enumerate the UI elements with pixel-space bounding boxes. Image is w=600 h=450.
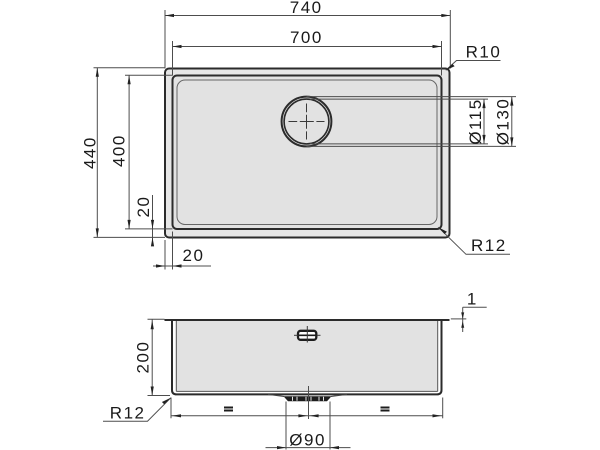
svg-text:Ø115: Ø115 [466,98,485,144]
svg-text:700: 700 [290,28,323,47]
svg-text:R12: R12 [471,236,507,255]
svg-text:400: 400 [109,134,128,167]
svg-text:Ø130: Ø130 [494,98,513,146]
svg-text:20: 20 [134,196,153,218]
svg-text:R10: R10 [466,42,502,61]
svg-text:Ø90: Ø90 [289,431,326,450]
svg-text:200: 200 [134,341,153,374]
svg-text:20: 20 [183,246,205,265]
svg-text:740: 740 [290,0,323,17]
svg-text:1: 1 [467,289,478,308]
svg-text:R12: R12 [110,404,146,423]
svg-text:440: 440 [81,136,100,169]
